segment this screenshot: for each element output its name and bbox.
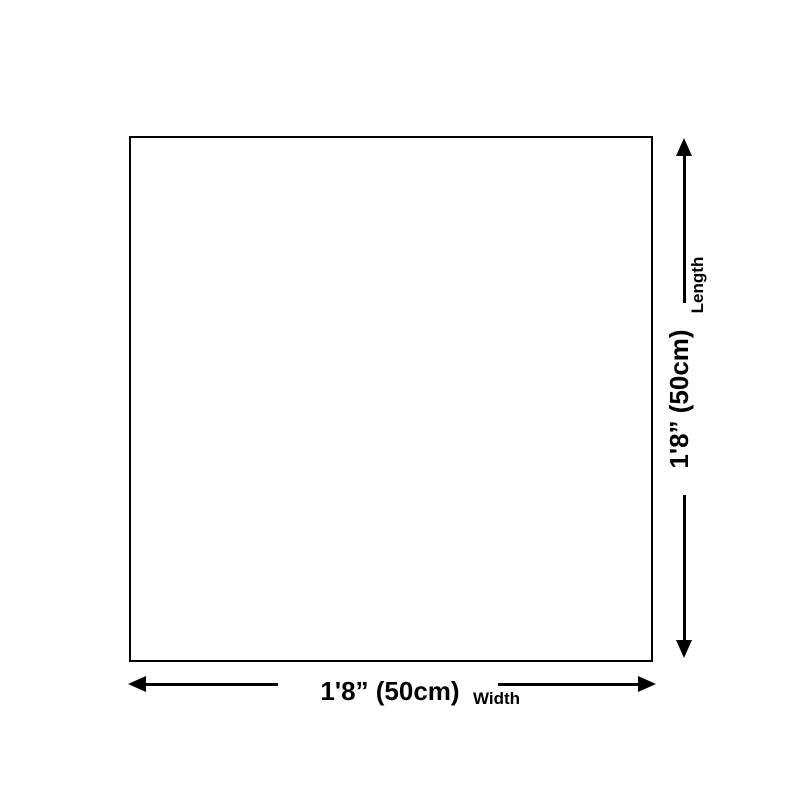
width-dimension-line-right — [498, 683, 638, 686]
width-dimension-value: 1'8” (50cm) — [320, 678, 459, 704]
arrow-left-icon — [128, 676, 146, 692]
length-dimension-value: 1'8” (50cm) — [666, 328, 692, 470]
width-axis-label: Width — [473, 690, 520, 708]
length-dimension-line-bottom — [683, 495, 686, 641]
arrow-right-icon — [638, 676, 656, 692]
width-dimension-line-left — [145, 683, 278, 686]
dimension-diagram: Length 1'8” (50cm) 1'8” (50cm) Width — [0, 0, 800, 800]
length-dimension-line-top — [683, 154, 686, 303]
product-outline-square — [129, 136, 653, 662]
length-axis-label: Length — [689, 255, 707, 315]
arrow-down-icon — [676, 640, 692, 658]
